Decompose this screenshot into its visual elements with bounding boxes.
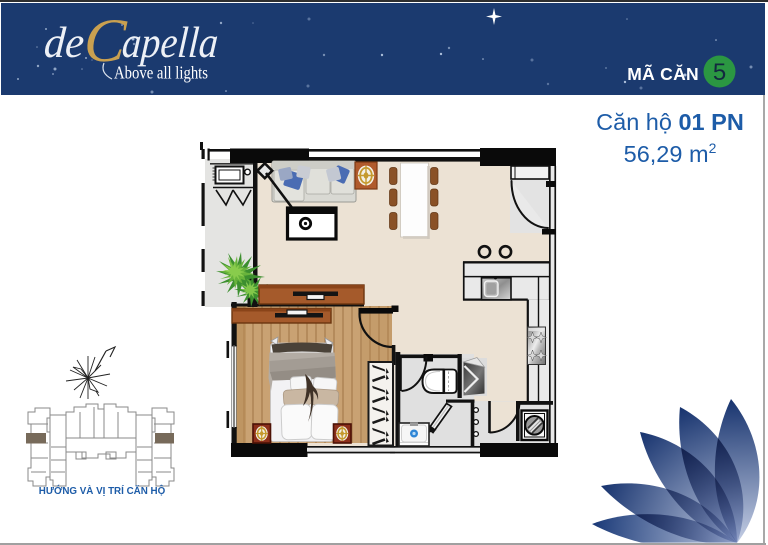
svg-text:HƯỚNG VÀ VỊ TRÍ CĂN HỘ: HƯỚNG VÀ VỊ TRÍ CĂN HỘ xyxy=(39,485,166,497)
